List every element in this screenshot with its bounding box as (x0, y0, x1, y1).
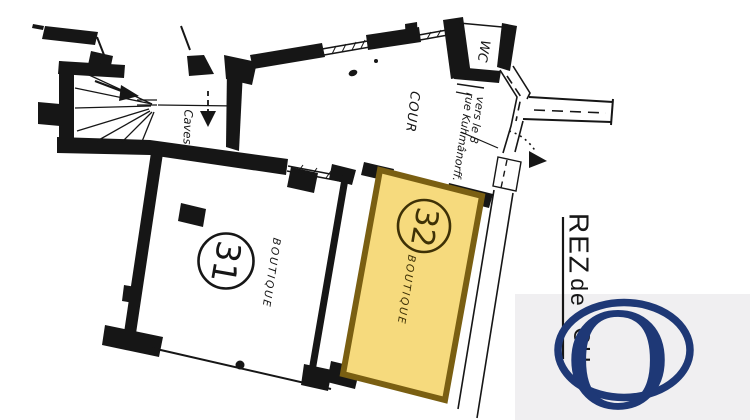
watermark-logo-group: O (558, 286, 690, 420)
wall-segment (38, 102, 60, 126)
floor-plan-image: COUR Caves WC vers le 8 rue Kuhmânorff. … (0, 0, 750, 420)
room31-number: 31 (203, 238, 249, 286)
speck (374, 59, 378, 63)
wall-segment (59, 61, 74, 149)
floor-label-rez: REZ (564, 213, 595, 275)
room32-number: 32 (403, 204, 445, 249)
watermark-letter: O (564, 286, 672, 420)
wall-segment (405, 22, 418, 43)
floor-plan-svg: COUR Caves WC vers le 8 rue Kuhmânorff. … (0, 0, 750, 420)
caves-label: Caves (180, 109, 195, 144)
